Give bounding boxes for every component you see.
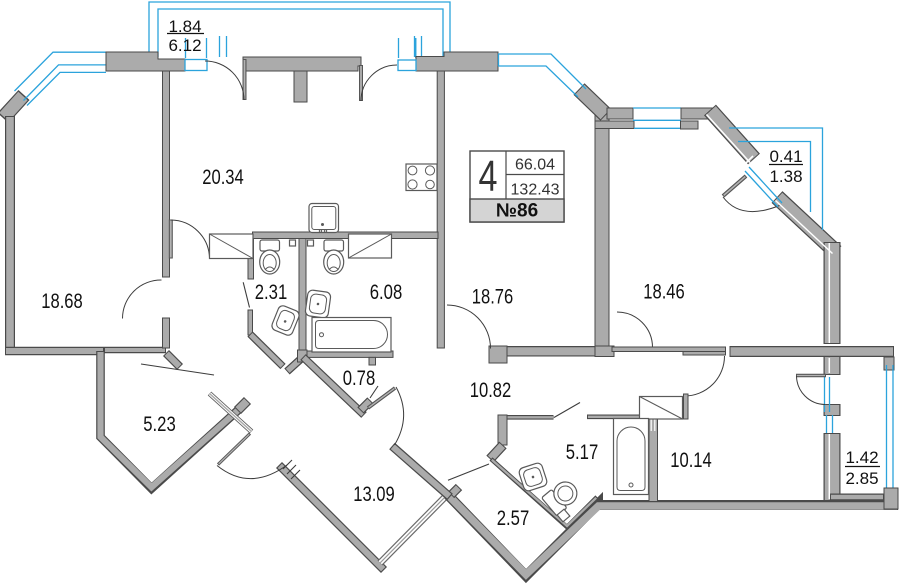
svg-text:10.14: 10.14 <box>670 449 712 472</box>
svg-text:18.68: 18.68 <box>41 290 83 313</box>
svg-text:0.78: 0.78 <box>343 367 376 390</box>
svg-text:66.04: 66.04 <box>515 157 555 174</box>
svg-text:18.76: 18.76 <box>472 286 514 309</box>
svg-text:6.08: 6.08 <box>370 281 403 304</box>
svg-text:5.17: 5.17 <box>566 441 599 464</box>
svg-text:132.43: 132.43 <box>511 182 560 199</box>
svg-text:20.34: 20.34 <box>202 166 244 189</box>
svg-text:2.85: 2.85 <box>845 469 878 488</box>
svg-text:13.09: 13.09 <box>353 483 395 506</box>
svg-text:2.31: 2.31 <box>255 281 288 304</box>
svg-text:2.57: 2.57 <box>497 507 530 530</box>
svg-text:№86: №86 <box>496 201 538 222</box>
svg-text:18.46: 18.46 <box>643 281 685 304</box>
svg-text:5.23: 5.23 <box>143 413 176 436</box>
svg-text:1.42: 1.42 <box>845 448 878 467</box>
svg-text:0.41: 0.41 <box>769 147 802 166</box>
svg-text:1.38: 1.38 <box>769 167 802 186</box>
svg-text:10.82: 10.82 <box>470 379 512 402</box>
svg-text:6.12: 6.12 <box>168 36 201 55</box>
svg-text:4: 4 <box>479 152 498 201</box>
